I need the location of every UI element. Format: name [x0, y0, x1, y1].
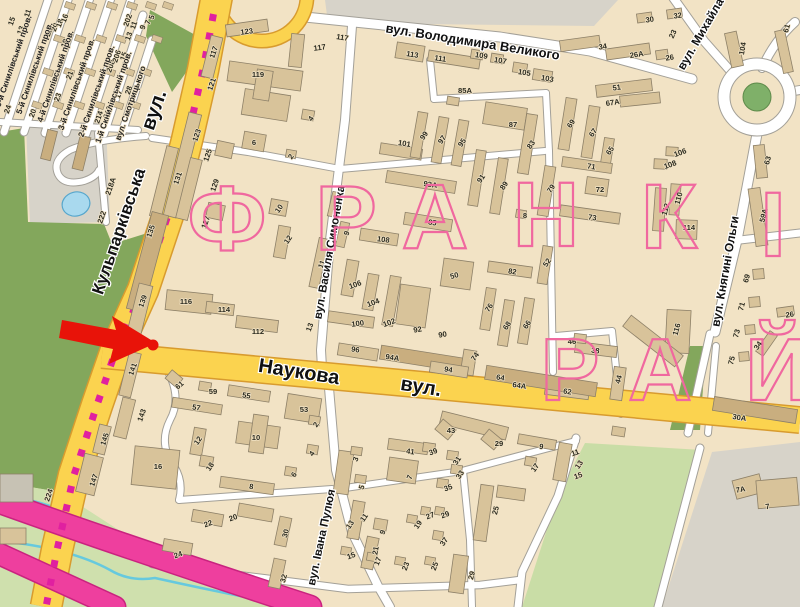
- building-number: 73: [588, 212, 598, 222]
- red-dot-marker[interactable]: [148, 340, 159, 351]
- building: [756, 477, 799, 508]
- building-number: 85А: [458, 86, 472, 95]
- building-number: 117: [336, 32, 350, 43]
- building-number: 26: [665, 52, 675, 62]
- building-number: 57: [192, 402, 202, 412]
- building-number: 92: [413, 324, 423, 334]
- district-letter: Н: [513, 164, 581, 266]
- building-number: 30: [645, 14, 655, 24]
- building: [387, 457, 419, 484]
- building-number: 29: [495, 439, 503, 448]
- building-number: 87: [509, 120, 517, 129]
- district-letter: А: [628, 320, 694, 419]
- building: [373, 518, 388, 531]
- building: [215, 140, 235, 158]
- building-number: 90: [438, 329, 448, 339]
- building-number: 119: [252, 70, 264, 79]
- district-letter: Р: [541, 320, 602, 419]
- building-number: 112: [252, 327, 264, 336]
- building: [350, 446, 362, 455]
- district-letter: І: [760, 174, 788, 276]
- building-number: 72: [596, 185, 604, 194]
- district-letter: К: [641, 166, 699, 268]
- building: [749, 297, 761, 308]
- building-number: 82: [508, 266, 518, 276]
- building: [611, 426, 625, 437]
- map-viewport[interactable]: 1513112220181619212324201715131197520820…: [0, 0, 800, 607]
- building: [354, 474, 366, 483]
- district-letter: Р: [315, 168, 378, 270]
- district-letter: А: [402, 166, 470, 268]
- district-letter: Й: [745, 320, 800, 419]
- city-map[interactable]: 1513112220181619212324201715131197520820…: [0, 0, 800, 607]
- building-number: 32: [673, 10, 683, 20]
- building-number: 26: [785, 309, 795, 319]
- building-number: 43: [447, 426, 455, 435]
- building-number: 114: [218, 305, 231, 314]
- building-number: 116: [180, 297, 192, 306]
- building: [446, 96, 459, 106]
- district-letter: Ф: [188, 168, 269, 270]
- building-number: 113: [406, 49, 420, 60]
- building-number: 123: [240, 26, 254, 37]
- building-number: 96: [351, 344, 361, 354]
- building: [0, 528, 26, 544]
- building-number: 53: [300, 405, 308, 414]
- building-number: 10: [252, 433, 260, 442]
- building-number: 59: [209, 387, 217, 396]
- building-number: 100: [351, 318, 365, 329]
- building-number: 6: [252, 138, 256, 147]
- building: [0, 474, 33, 502]
- building-number: 117: [313, 42, 326, 53]
- building: [395, 284, 430, 328]
- building-number: 16: [154, 462, 162, 471]
